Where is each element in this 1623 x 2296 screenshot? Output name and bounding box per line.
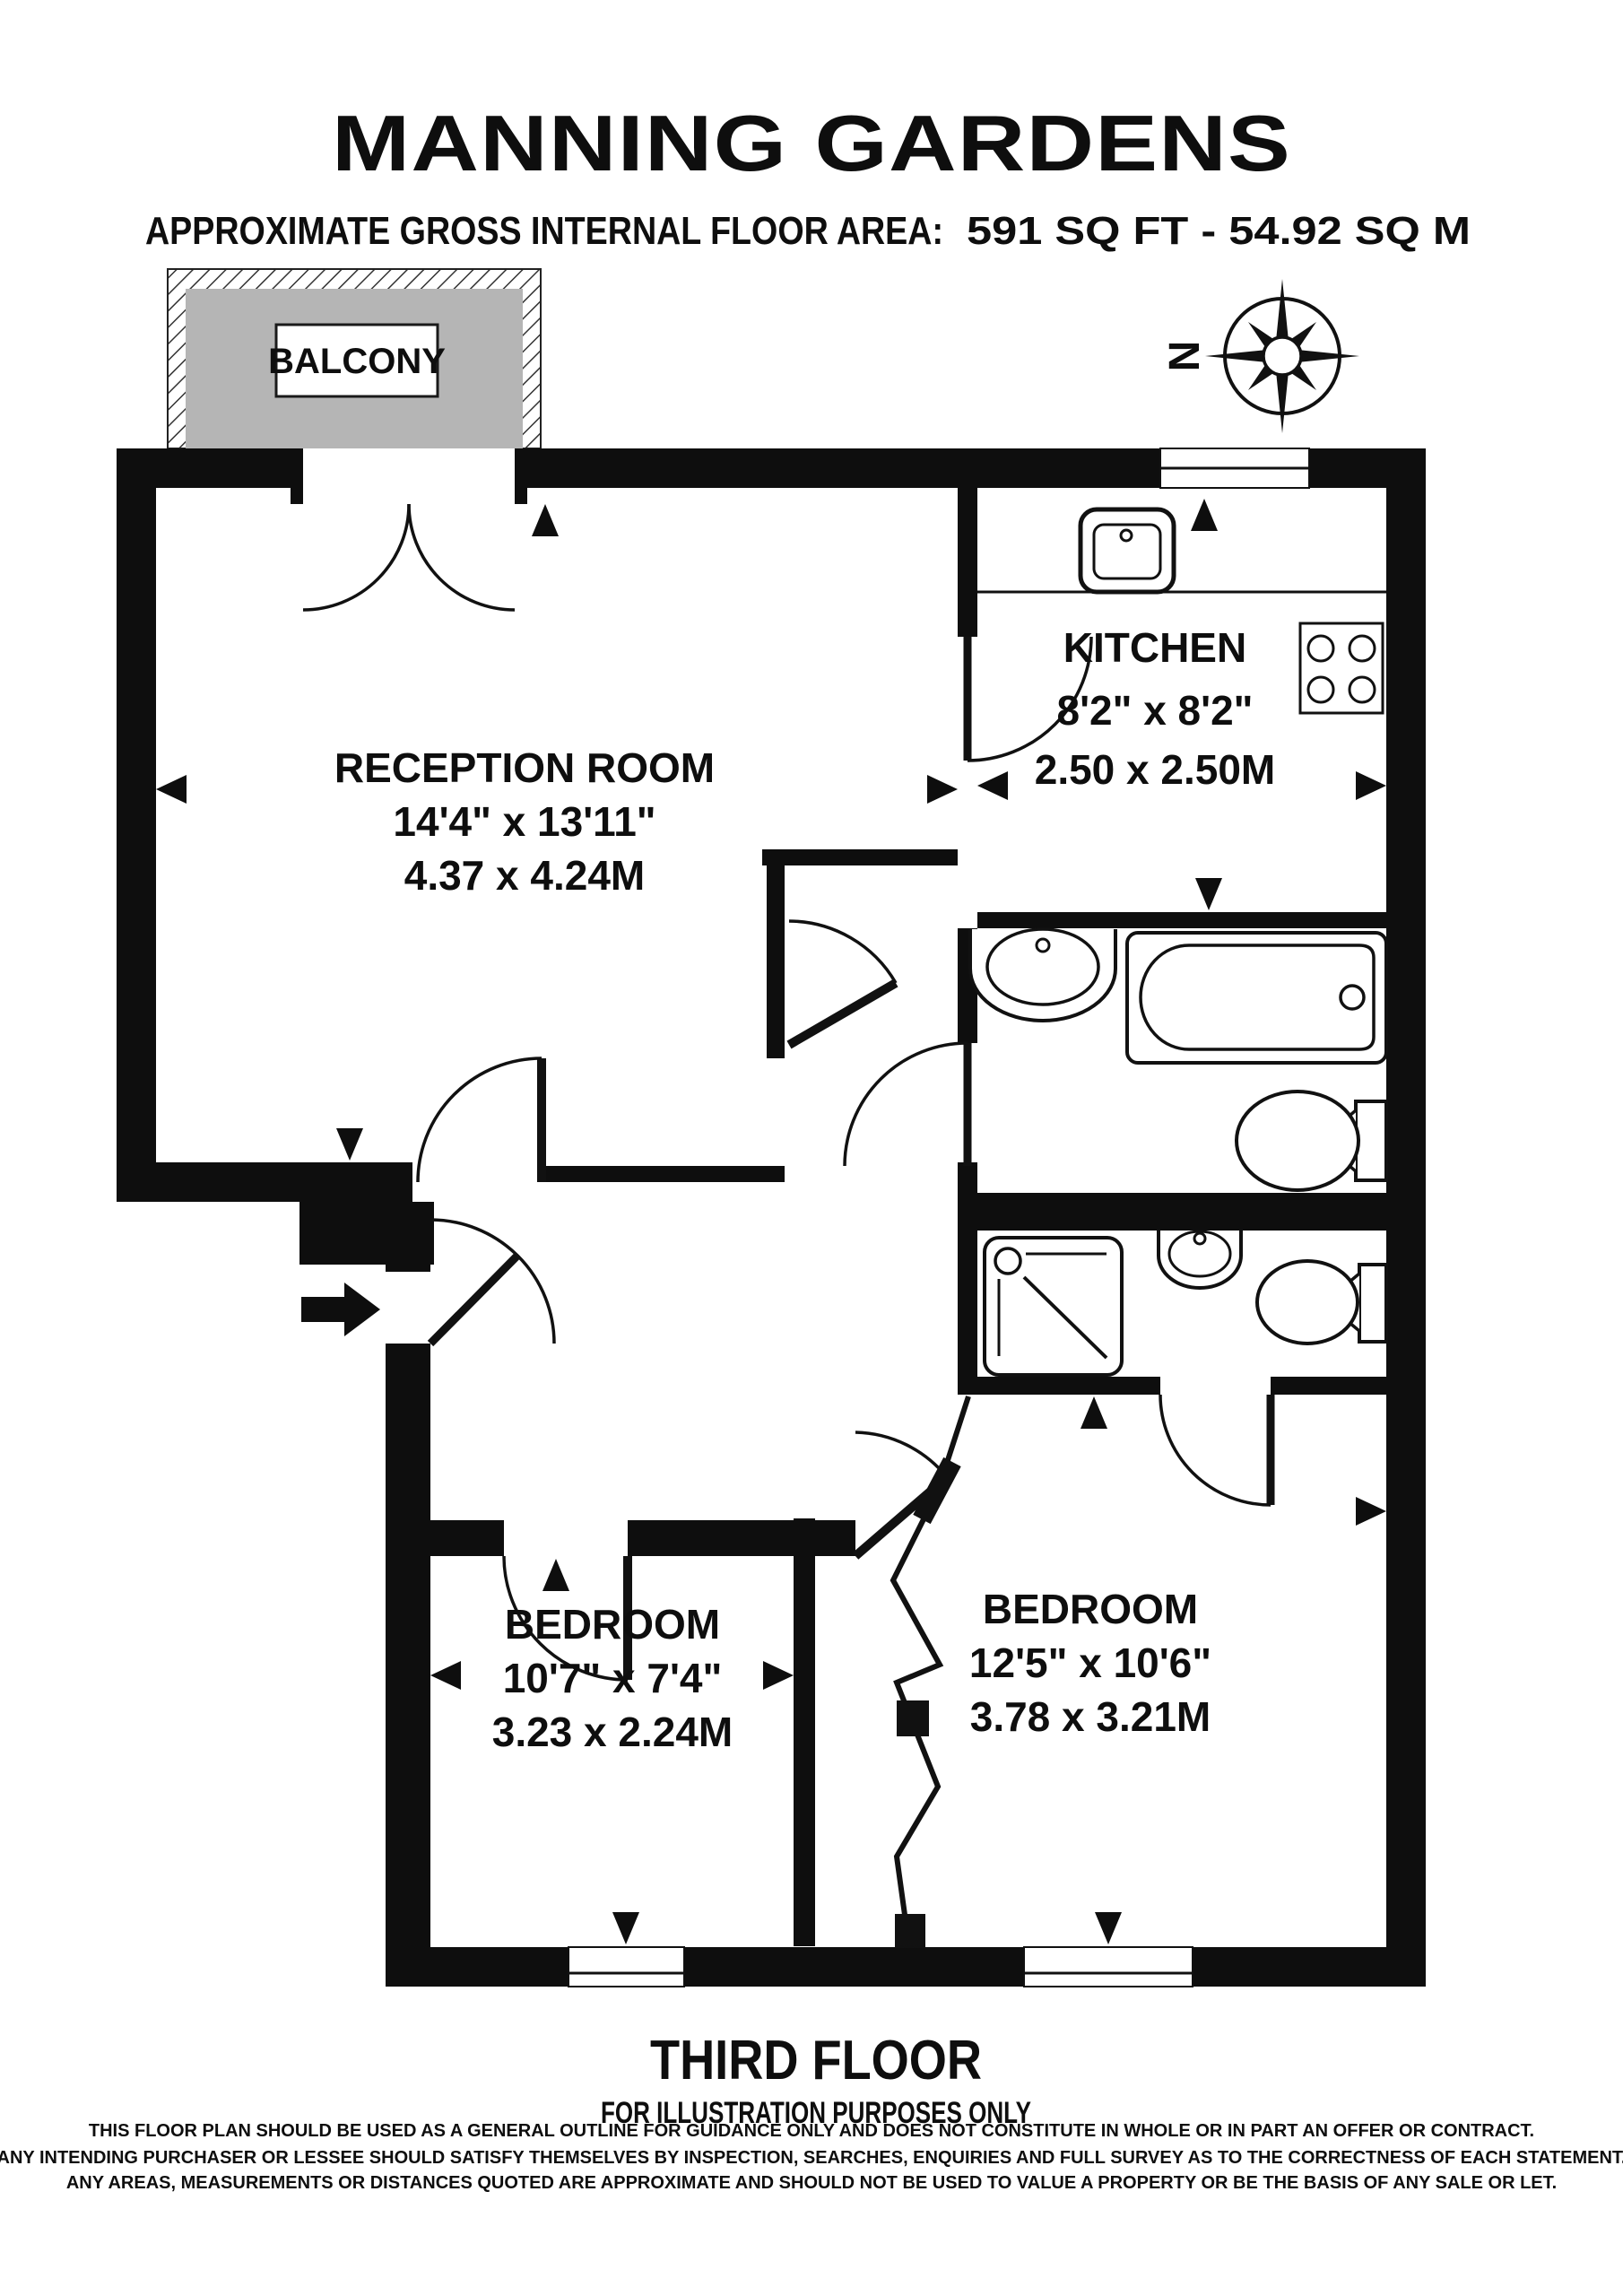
bedroom-left-name: BEDROOM — [505, 1601, 720, 1648]
bath-icon — [1127, 933, 1386, 1063]
disclaimer-line-1: THIS FLOOR PLAN SHOULD BE USED AS A GENE… — [89, 2121, 1534, 2141]
north-label: N — [1161, 341, 1209, 372]
marker-reception-right — [927, 775, 958, 804]
bathroom-sink-icon — [970, 929, 1115, 1021]
bedroom-left-metric: 3.23 x 2.24M — [492, 1709, 733, 1755]
disclaimer: THIS FLOOR PLAN SHOULD BE USED AS A GENE… — [0, 2121, 1623, 2193]
reception-metric: 4.37 x 4.24M — [404, 852, 646, 899]
marker-bed1-up — [542, 1559, 569, 1591]
bedroom-right-imperial: 12'5" x 10'6" — [969, 1639, 1211, 1686]
bathroom-fixtures — [970, 929, 1386, 1190]
page-title: MANNING GARDENS — [332, 99, 1291, 187]
marker-bed2-right — [1356, 1497, 1386, 1526]
bathroom-door-arc — [845, 1043, 968, 1166]
walls — [117, 448, 1426, 1987]
kitchen-window — [1160, 448, 1309, 488]
subtitle-value: 591 SQ FT - 54.92 SQ M — [967, 209, 1471, 253]
reception-imperial: 14'4" x 13'11" — [393, 798, 655, 845]
marker-bed1-down — [612, 1912, 639, 1944]
bedroom-left-imperial: 10'7" x 7'4" — [503, 1655, 723, 1701]
shower-toilet-icon — [1257, 1261, 1386, 1344]
shower-tray-icon — [985, 1238, 1122, 1375]
marker-reception-left — [156, 775, 187, 804]
marker-kitchen-left — [977, 771, 1008, 800]
kitchen-name: KITCHEN — [1063, 624, 1246, 671]
marker-kitchen-right — [1356, 771, 1386, 800]
floorplan-page: MANNING GARDENS APPROXIMATE GROSS INTERN… — [0, 0, 1623, 2296]
kitchen-fixtures — [977, 509, 1386, 713]
marker-bed1-left — [430, 1661, 461, 1690]
kitchen-imperial: 8'2" x 8'2" — [1057, 687, 1254, 734]
balcony: BALCONY — [168, 269, 541, 448]
bedroom-left-window — [568, 1947, 684, 1987]
kitchen-sink-icon — [1081, 509, 1174, 592]
ensuite-door-arc — [1160, 1395, 1271, 1505]
balcony-door-arc-left — [303, 504, 409, 610]
marker-reception-up — [532, 504, 559, 536]
zigzag-partition — [893, 1396, 968, 1948]
floor-label: THIRD FLOOR — [650, 2030, 982, 2092]
door-swings — [303, 504, 1271, 1680]
shower-sink-icon — [1159, 1231, 1241, 1288]
disclaimer-line-3: ANY AREAS, MEASUREMENTS OR DISTANCES QUO… — [66, 2173, 1557, 2193]
shower-room-fixtures — [985, 1231, 1386, 1375]
bedroom-right-name: BEDROOM — [983, 1586, 1198, 1632]
balcony-label: BALCONY — [268, 342, 446, 381]
marker-bed2-down — [1095, 1912, 1122, 1944]
marker-bed1-right — [763, 1661, 794, 1690]
bedroom-right-window — [1024, 1947, 1193, 1987]
bedroom-right-metric: 3.78 x 3.21M — [970, 1693, 1211, 1740]
hob-icon — [1300, 623, 1383, 713]
hall-door-leaf — [789, 983, 896, 1045]
balcony-door-opening — [303, 448, 515, 488]
entry-arrow — [301, 1283, 380, 1336]
marker-kitchen-down — [1195, 878, 1222, 910]
hall-door-arc — [789, 921, 896, 983]
toilet-icon — [1237, 1091, 1386, 1190]
marker-reception-down — [336, 1128, 363, 1161]
disclaimer-line-2: ANY INTENDING PURCHASER OR LESSEE SHOULD… — [0, 2148, 1623, 2168]
bedroom-right-door-arc — [855, 1432, 947, 1477]
kitchen-metric: 2.50 x 2.50M — [1035, 746, 1276, 793]
compass-rose: N — [1161, 279, 1359, 433]
entry-door-leaf — [430, 1256, 517, 1344]
balcony-door-arc-right — [409, 504, 515, 610]
subtitle-label: APPROXIMATE GROSS INTERNAL FLOOR AREA: — [145, 209, 943, 253]
marker-kitchen-up — [1191, 499, 1218, 531]
reception-door-arc — [418, 1058, 542, 1182]
floorplan-svg: MANNING GARDENS APPROXIMATE GROSS INTERN… — [0, 0, 1623, 2296]
compass-center — [1263, 337, 1301, 375]
marker-bed2-up — [1081, 1396, 1107, 1429]
reception-name: RECEPTION ROOM — [334, 744, 715, 791]
